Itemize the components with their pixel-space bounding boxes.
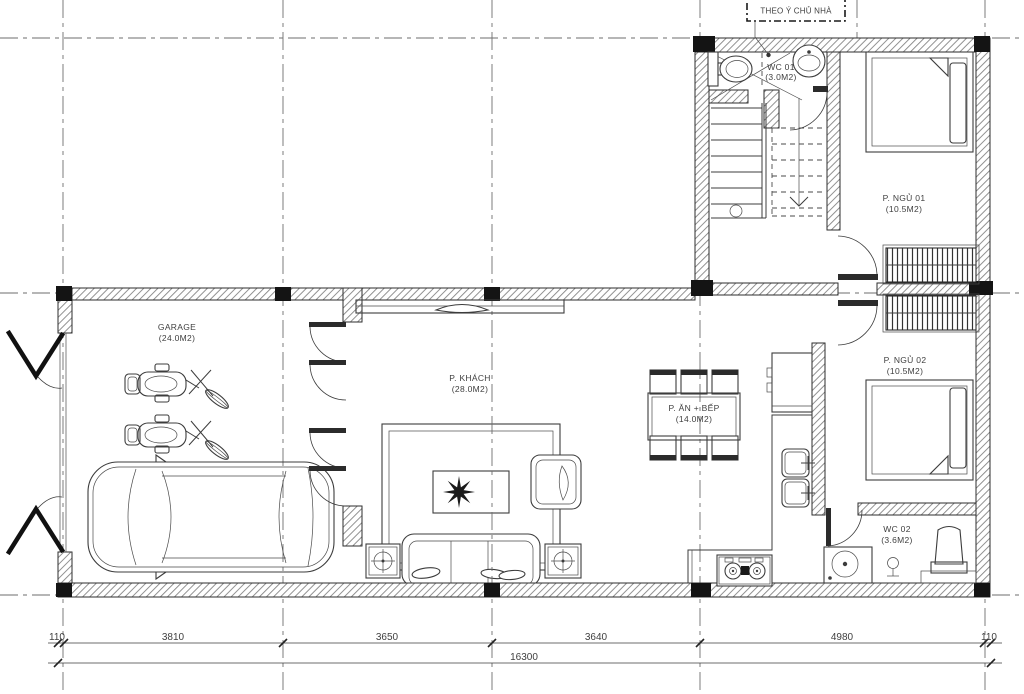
floor-drain-symbol <box>887 558 899 577</box>
garage-area: (24.0M2) <box>159 333 195 343</box>
bedroom2-area: (10.5M2) <box>887 366 923 376</box>
side-table-left <box>366 544 400 578</box>
annotation-label: THEO Ý CHỦ NHÀ <box>760 7 832 16</box>
dining-area: (14.0M2) <box>676 414 712 424</box>
toilet-symbol <box>708 52 752 86</box>
car-symbol <box>88 455 334 579</box>
garage-name: GARAGE <box>158 322 196 332</box>
folding-door-partition <box>309 322 346 506</box>
bedroom1-bed <box>866 52 973 152</box>
living-name: P. KHÁCH <box>449 373 490 383</box>
bedroom1-area: (10.5M2) <box>886 204 922 214</box>
leader-dot <box>766 53 770 57</box>
wc2-area: (3.6M2) <box>881 535 912 545</box>
coffee-table <box>433 471 509 513</box>
garage-gate <box>9 333 66 552</box>
sink-symbol <box>793 45 825 77</box>
tv-console <box>356 300 564 313</box>
wc1-area: (3.0M2) <box>765 72 796 82</box>
bedroom2-wardrobe <box>883 294 979 332</box>
bedroom2-bed <box>866 380 973 480</box>
dim-4980: 4980 <box>831 632 854 643</box>
bedroom1-name: P. NGỦ 01 <box>883 192 926 203</box>
washing-machine-symbol <box>824 547 872 583</box>
structural-columns <box>56 36 993 597</box>
plant-symbol <box>443 476 475 508</box>
bedroom2-name: P. NGỦ 02 <box>884 354 927 365</box>
side-table-right <box>545 544 581 578</box>
walls <box>58 38 990 597</box>
cooktop-symbol <box>717 555 772 586</box>
wc1-door <box>790 86 828 130</box>
kitchen-sink-symbol <box>782 449 815 507</box>
armchair <box>531 455 581 509</box>
fridge-symbol <box>767 353 812 412</box>
dim-110-right: 110 <box>981 632 997 643</box>
bedroom2-door <box>838 300 878 345</box>
bedroom1-wardrobe <box>883 245 979 284</box>
sofa <box>402 534 540 586</box>
wc2-name: WC 02 <box>883 524 910 534</box>
dim-total: 16300 <box>510 652 538 663</box>
dimension-lines: 110 3810 3650 3640 4980 110 16300 <box>48 632 1002 667</box>
dining-name: P. ĂN + BẾP <box>668 403 719 413</box>
toilet2-symbol <box>921 527 976 584</box>
wc1-name: WC 01 <box>767 62 794 72</box>
bedroom1-door <box>838 236 878 280</box>
dim-3640: 3640 <box>585 632 608 643</box>
dim-3810: 3810 <box>162 632 185 643</box>
motorcycle-1 <box>125 364 231 411</box>
living-area: (28.0M2) <box>452 384 488 394</box>
dim-110-left: 110 <box>49 632 65 643</box>
floor-plan-canvas: WC 01 (3.0M2) P. NGỦ 01 (10.5M2) GARAGE … <box>0 0 1024 694</box>
motorcycle-2 <box>125 415 231 462</box>
wc2-door <box>826 508 862 546</box>
floor-plan-page: WC 01 (3.0M2) P. NGỦ 01 (10.5M2) GARAGE … <box>0 0 1024 694</box>
dim-3650: 3650 <box>376 632 399 643</box>
